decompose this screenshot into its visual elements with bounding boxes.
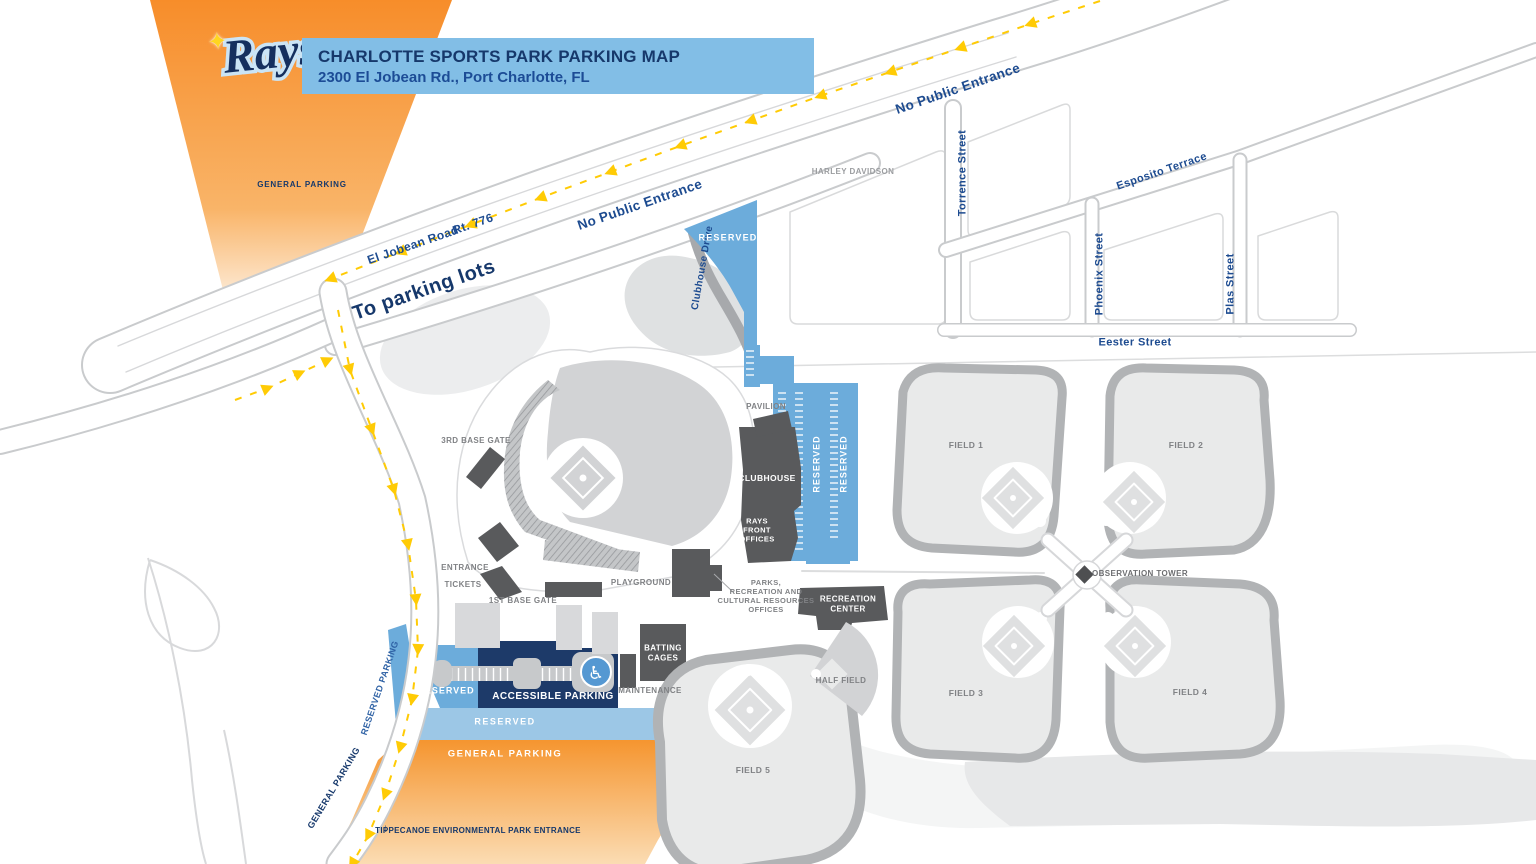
rays-star-icon: ✦ xyxy=(206,26,229,57)
stadium xyxy=(455,347,754,654)
playground-building xyxy=(672,549,710,597)
title-box: CHARLOTTE SPORTS PARK PARKING MAP 2300 E… xyxy=(302,38,814,94)
map-graphics: ♿ xyxy=(0,0,1536,864)
recreation-center-building xyxy=(798,586,888,630)
clubhouse-building xyxy=(739,427,801,563)
first-base-gate-building xyxy=(545,582,602,597)
map-address: 2300 El Jobean Rd., Port Charlotte, FL xyxy=(318,69,814,86)
parking-map: ♿ xyxy=(0,0,1536,864)
wheelchair-icon: ♿ xyxy=(588,663,604,684)
map-title: CHARLOTTE SPORTS PARK PARKING MAP xyxy=(318,47,814,67)
maintenance-building xyxy=(620,654,636,688)
minor-road-outlines xyxy=(145,558,246,864)
reserved-lot-rec-center xyxy=(806,538,850,564)
